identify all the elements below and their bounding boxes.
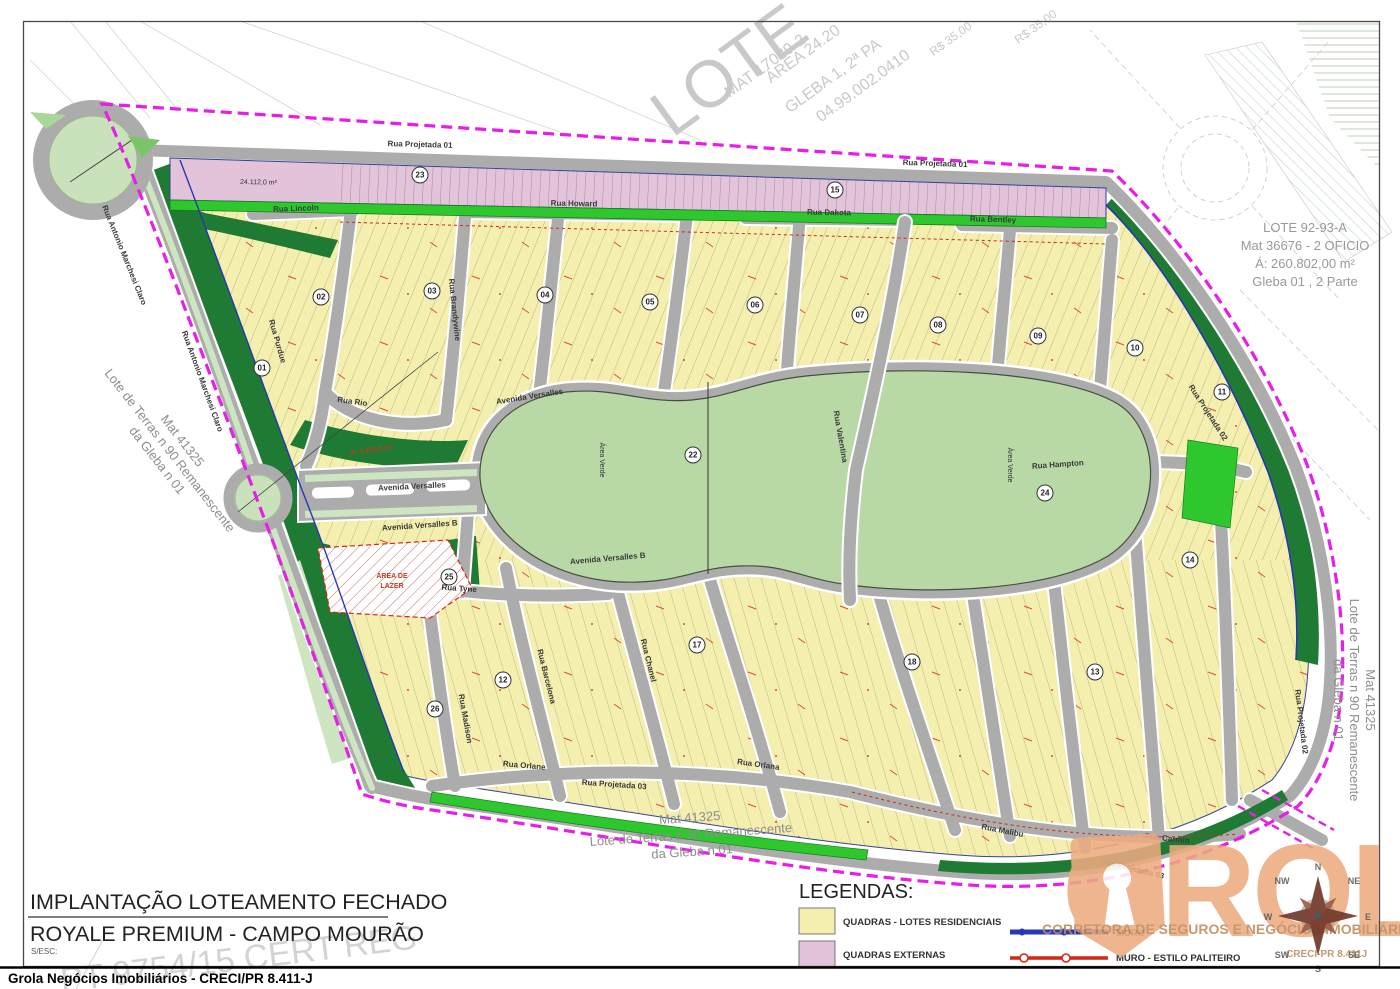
- scale-label: S/ESC:: [31, 947, 57, 956]
- svg-text:04: 04: [541, 291, 550, 300]
- svg-text:12: 12: [499, 676, 508, 685]
- svg-text:Á: 260.802,00 m²: Á: 260.802,00 m²: [1255, 256, 1355, 271]
- svg-text:da Gleba n 01: da Gleba n 01: [651, 841, 734, 862]
- compass-sw: SW: [1275, 950, 1290, 960]
- svg-text:15: 15: [831, 186, 840, 195]
- street-label: Rua Dakota: [807, 208, 852, 218]
- svg-text:Mat 41325: Mat 41325: [1363, 669, 1378, 730]
- street-label: Rua Bentley: [970, 214, 1017, 225]
- bottom-bar-credit: Grola Negócios Imobiliários - CRECI/PR 8…: [8, 971, 313, 986]
- svg-text:03: 03: [428, 287, 437, 296]
- svg-text:22: 22: [689, 451, 698, 460]
- street-label: Rua Projetada 01: [387, 139, 453, 150]
- svg-text:05: 05: [646, 298, 655, 307]
- plan-title-line2: ROYALE PREMIUM - CAMPO MOURÃO: [30, 921, 424, 946]
- legend-swatch-residencial: [799, 908, 835, 934]
- club-area-label: ÁREA DE: [376, 571, 408, 580]
- plan-title-line1: IMPLANTAÇÃO LOTEAMENTO FECHADO: [30, 889, 447, 914]
- street-label: Rua Antonio Marchesi Claro: [100, 204, 148, 307]
- svg-text:09: 09: [1034, 332, 1043, 341]
- site-plan-svg: 24.112,0 m² ÁREA DE LAZER: [0, 0, 1400, 989]
- legend-swatch-externas: [799, 941, 835, 967]
- site-plan-page: { "page": { "bottom_bar_text": "Grola Ne…: [0, 0, 1400, 989]
- legend-label: QUADRAS - LOTES RESIDENCIAIS: [843, 917, 1001, 928]
- svg-text:08: 08: [934, 321, 943, 330]
- compass-se: SE: [1348, 950, 1360, 960]
- compass-n: N: [1315, 862, 1322, 872]
- svg-text:02: 02: [317, 293, 326, 302]
- svg-text:LOTE: LOTE: [637, 0, 820, 150]
- svg-text:18: 18: [908, 658, 917, 667]
- svg-text:Área Verde: Área Verde: [598, 442, 607, 477]
- svg-text:Mat 36676 - 2 OFICIO: Mat 36676 - 2 OFICIO: [1241, 238, 1370, 253]
- svg-text:R$ 35,00: R$ 35,00: [1012, 7, 1060, 47]
- legend-heading: LEGENDAS:: [799, 881, 913, 903]
- top-gleba-note: LOTE MAT 17039-2 ÁREA 24.20 GLEBA 1, 2ª …: [637, 0, 1060, 150]
- street-label: Rua Lincoln: [273, 203, 319, 214]
- svg-text:13: 13: [1091, 668, 1100, 677]
- compass-nw: NW: [1275, 876, 1290, 886]
- svg-text:23: 23: [416, 171, 425, 180]
- compass-w: W: [1264, 912, 1273, 922]
- svg-text:14: 14: [1186, 556, 1195, 565]
- svg-text:11: 11: [1218, 388, 1227, 397]
- legend-label: QUADRAS EXTERNAS: [843, 950, 945, 961]
- street-label: Rua Howard: [551, 199, 598, 209]
- svg-text:Gleba 01 , 2 Parte: Gleba 01 , 2 Parte: [1252, 274, 1358, 289]
- mat41325-east-note: Mat 41325 Lote de Terras n 90 Remanescen…: [1331, 599, 1378, 802]
- svg-text:24: 24: [1041, 489, 1050, 498]
- compass-e: E: [1365, 912, 1371, 922]
- svg-text:10: 10: [1131, 344, 1140, 353]
- svg-text:da Gleba n 01: da Gleba n 01: [1331, 659, 1346, 741]
- grola-watermark: GROLA CORRETORA DE SEGUROS E NEGÓCIOS IM…: [1042, 817, 1400, 964]
- compass-ne: NE: [1348, 876, 1361, 886]
- svg-text:17: 17: [693, 641, 702, 650]
- svg-text:Lote de Terras n 90 Remanescen: Lote de Terras n 90 Remanescente: [1347, 599, 1362, 802]
- svg-text:25: 25: [445, 573, 454, 582]
- street-label: Rua Projetada 01: [902, 158, 968, 169]
- pink-block-area-label: 24.112,0 m²: [240, 179, 278, 187]
- roundabout-north: [30, 100, 160, 220]
- club-area-label: LAZER: [380, 583, 403, 590]
- compass-s: S: [1315, 964, 1321, 974]
- svg-text:01: 01: [258, 364, 267, 373]
- grola-tagline: CORRETORA DE SEGUROS E NEGÓCIOS IMOBILIÁ…: [1042, 920, 1400, 937]
- svg-text:26: 26: [431, 705, 440, 714]
- svg-text:06: 06: [751, 301, 760, 310]
- svg-text:R$ 35,00: R$ 35,00: [927, 19, 975, 59]
- svg-text:Área Verde: Área Verde: [1006, 447, 1015, 482]
- svg-text:07: 07: [856, 311, 865, 320]
- svg-text:LOTE 92-93-A: LOTE 92-93-A: [1263, 220, 1347, 235]
